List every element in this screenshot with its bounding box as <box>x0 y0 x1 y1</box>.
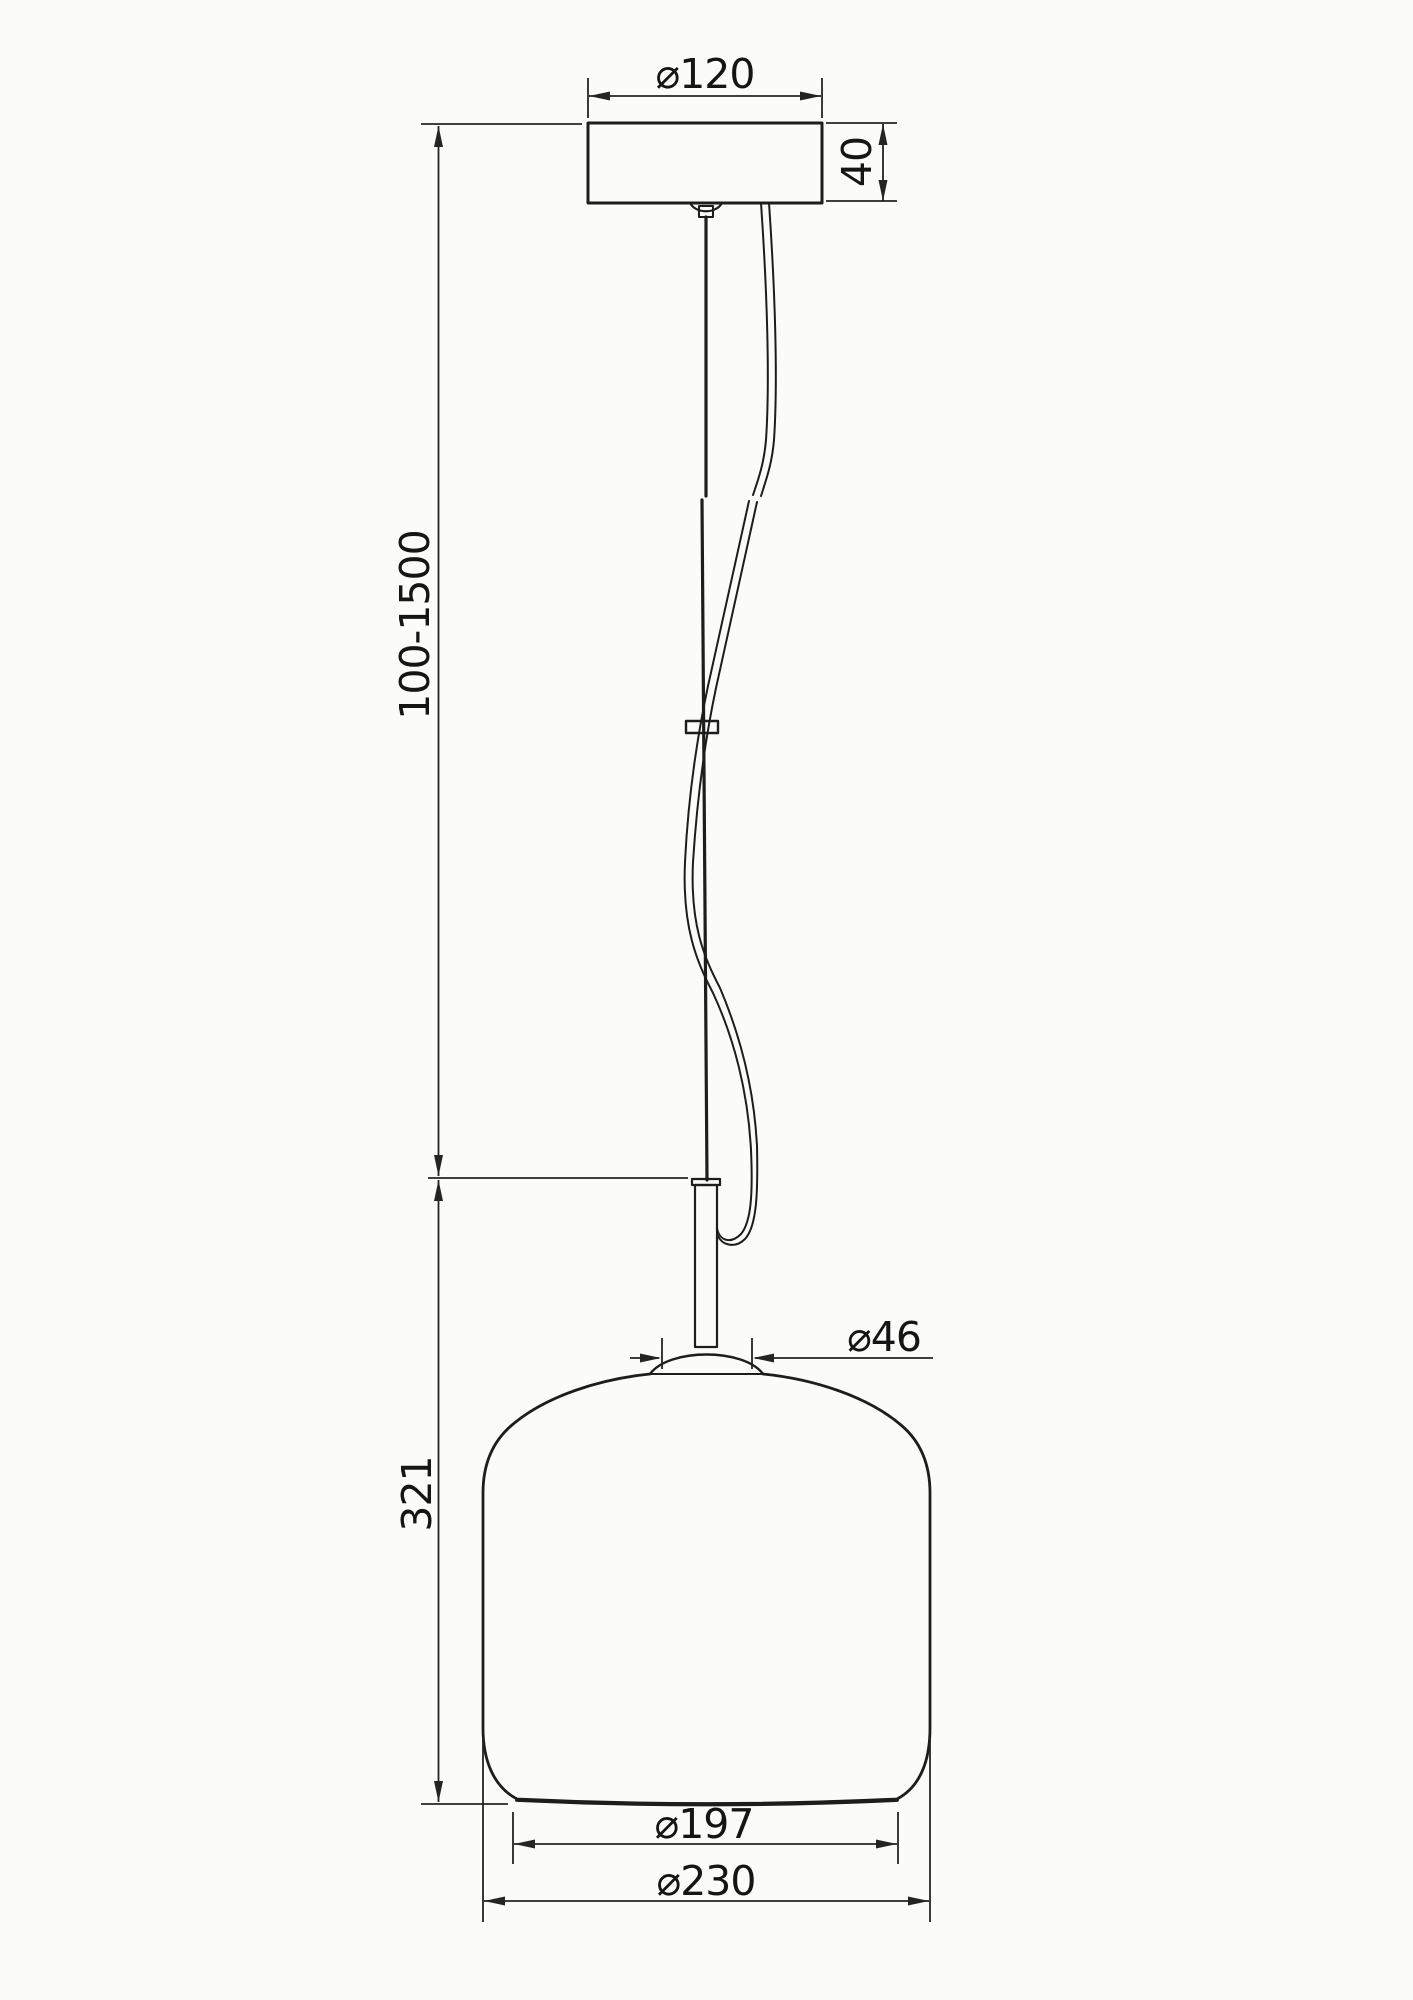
pendant-lamp-dimension-drawing: ⌀120 40 100-1500 321 ⌀46 ⌀197 ⌀230 <box>0 0 1413 2000</box>
canopy-diameter-label: ⌀120 <box>656 50 755 98</box>
suspension-length-label: 100-1500 <box>391 530 439 719</box>
opening-diameter-label: ⌀197 <box>655 1800 754 1848</box>
canopy-height-label: 40 <box>833 137 881 187</box>
body-height-label: 321 <box>393 1456 441 1531</box>
neck-diameter-label: ⌀46 <box>847 1313 921 1361</box>
max-diameter-label: ⌀230 <box>657 1857 756 1905</box>
